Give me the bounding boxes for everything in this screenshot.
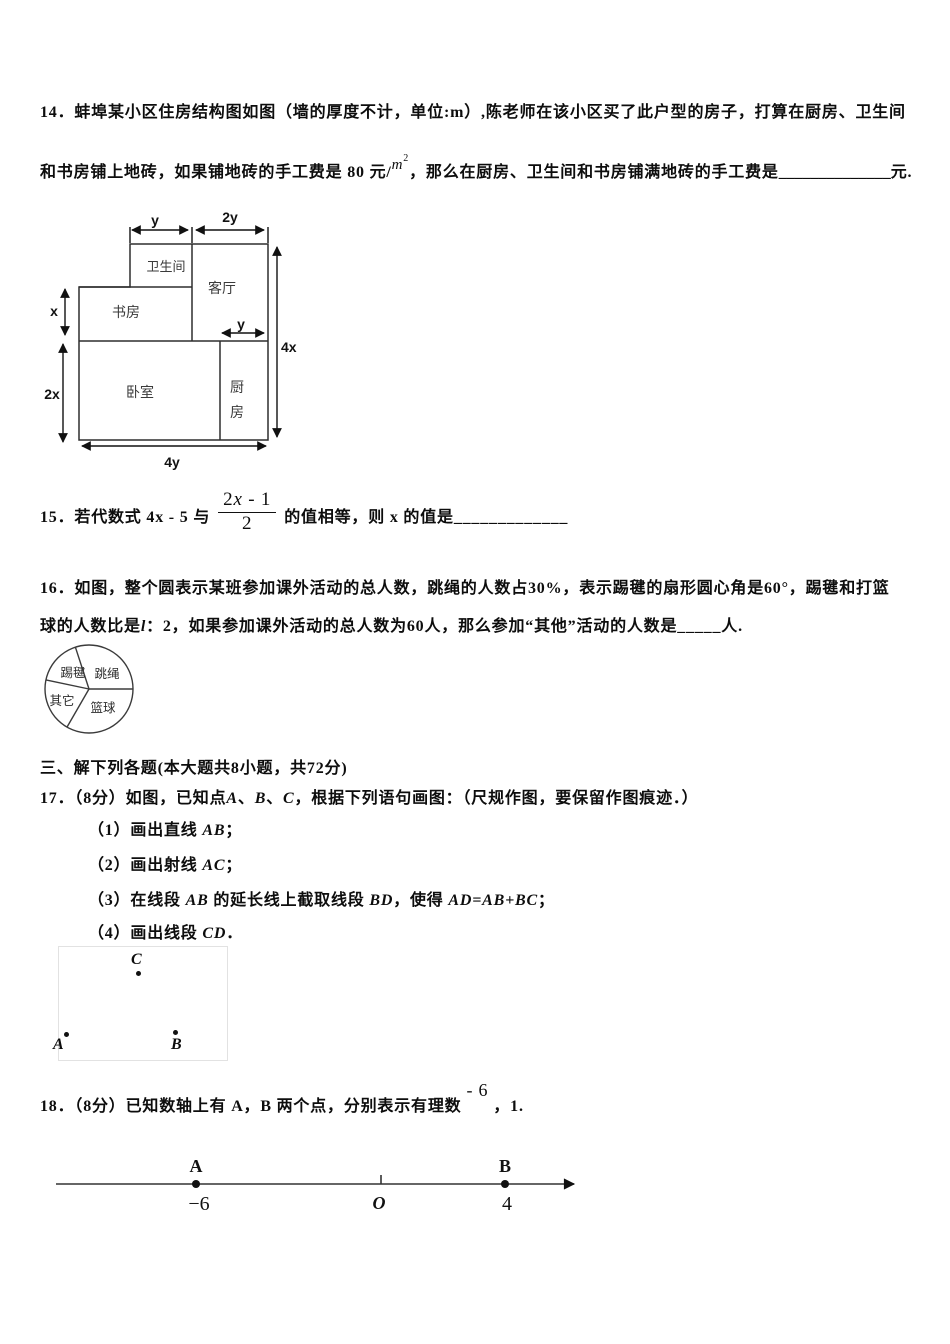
question-16-line-1: 16．如图，整个圆表示某班参加课外活动的总人数，跳绳的人数占30%，表示踢毽的扇… [40,574,890,598]
question-15-suffix: 的值相等，则 x 的值是_____________ [284,503,568,527]
point-label-a: A [53,1036,64,1054]
question-17-item-1: （1）画出直线 AB； [88,816,242,840]
question-15: 15．若代数式 4x - 5 与 2x - 1 2 的值相等，则 x 的值是__… [40,486,568,544]
dim-label-2x-left: 2x [44,386,60,402]
question-17-item-3: （3）在线段 AB 的延长线上截取线段 BD，使得 AD=AB+BC； [88,886,555,910]
question-14-line-2: 和书房铺上地砖，如果铺地砖的手工费是 80 元/m2，那么在厨房、卫生间和书房铺… [40,158,912,182]
room-label-living-room: 客厅 [208,280,236,297]
dim-label-2y-top: 2y [222,209,238,225]
fraction-2x-1-over-2: 2x - 1 2 [218,489,276,535]
room-label-kitchen-2: 房 [230,405,244,421]
room-label-study: 书房 [112,305,140,321]
number-line-label-a: A [190,1156,203,1176]
pie-label-jump-rope: 跳绳 [94,667,119,681]
pie-label-basketball: 篮球 [90,700,116,715]
question-16-line-2: 球的人数比是l：2，如果参加课外活动的总人数为60人，那么参加“其他”活动的人数… [40,612,743,636]
room-label-bathroom: 卫生间 [146,259,185,274]
section-3-header: 三、解下列各题(本大题共8小题，共72分) [40,754,347,778]
point-label-c: C [131,951,142,969]
question-15-prefix: 15．若代数式 4x - 5 与 [40,503,210,527]
room-label-kitchen-1: 厨 [230,381,244,396]
number-line-label-b: B [499,1156,511,1176]
point-label-b: B [171,1036,182,1054]
number-line-value-minus-6: −6 [188,1193,209,1215]
dim-label-y-kitchen: y [237,316,245,332]
number-line-value-4: 4 [502,1193,512,1215]
dim-label-4y-bottom: 4y [164,454,180,470]
point-dot-c [136,971,141,976]
number-line-origin-o: O [373,1193,386,1213]
dim-label-4x-right: 4x [281,339,297,355]
question-14-line-1: 14．蚌埠某小区住房结构图如图（墙的厚度不计，单位:m）,陈老师在该小区买了此户… [40,98,906,122]
question-18-line: 18．（8分）已知数轴上有 A，B 两个点，分别表示有理数- 6，1. [40,1092,524,1116]
question-17-item-2: （2）画出射线 AC； [88,851,242,875]
fraction-denominator: 2 [242,513,252,535]
exam-page: { "q14": { "line1": "14．蚌埠某小区住房结构图如图（墙的厚… [0,0,950,1344]
room-label-bedroom: 卧室 [126,384,154,401]
point-dot-b [173,1030,178,1035]
question-17-item-4: （4）画出线段 CD． [88,919,243,943]
pie-label-shuttlecock: 踢毽 [60,666,86,680]
points-figure-frame [58,946,228,1061]
house-diagram: y 2y x 2x 4x 4y y 卫生间 客厅 书房 卧室 厨 房 [38,203,310,475]
pie-label-other: 其它 [49,693,74,708]
number-line-axis [56,1175,574,1184]
dim-label-y-top: y [151,212,159,228]
dim-label-x-left: x [50,303,58,319]
fraction-numerator: 2x - 1 [218,489,276,513]
pie-chart: 跳绳 踢毽 其它 篮球 [42,641,138,737]
number-line: A B −6 O 4 [48,1156,593,1220]
point-dot-a [64,1032,69,1037]
question-17-title: 17．（8分）如图，已知点A、B、C，根据下列语句画图：（尺规作图，要保留作图痕… [40,784,699,808]
pie-outline [45,645,133,733]
